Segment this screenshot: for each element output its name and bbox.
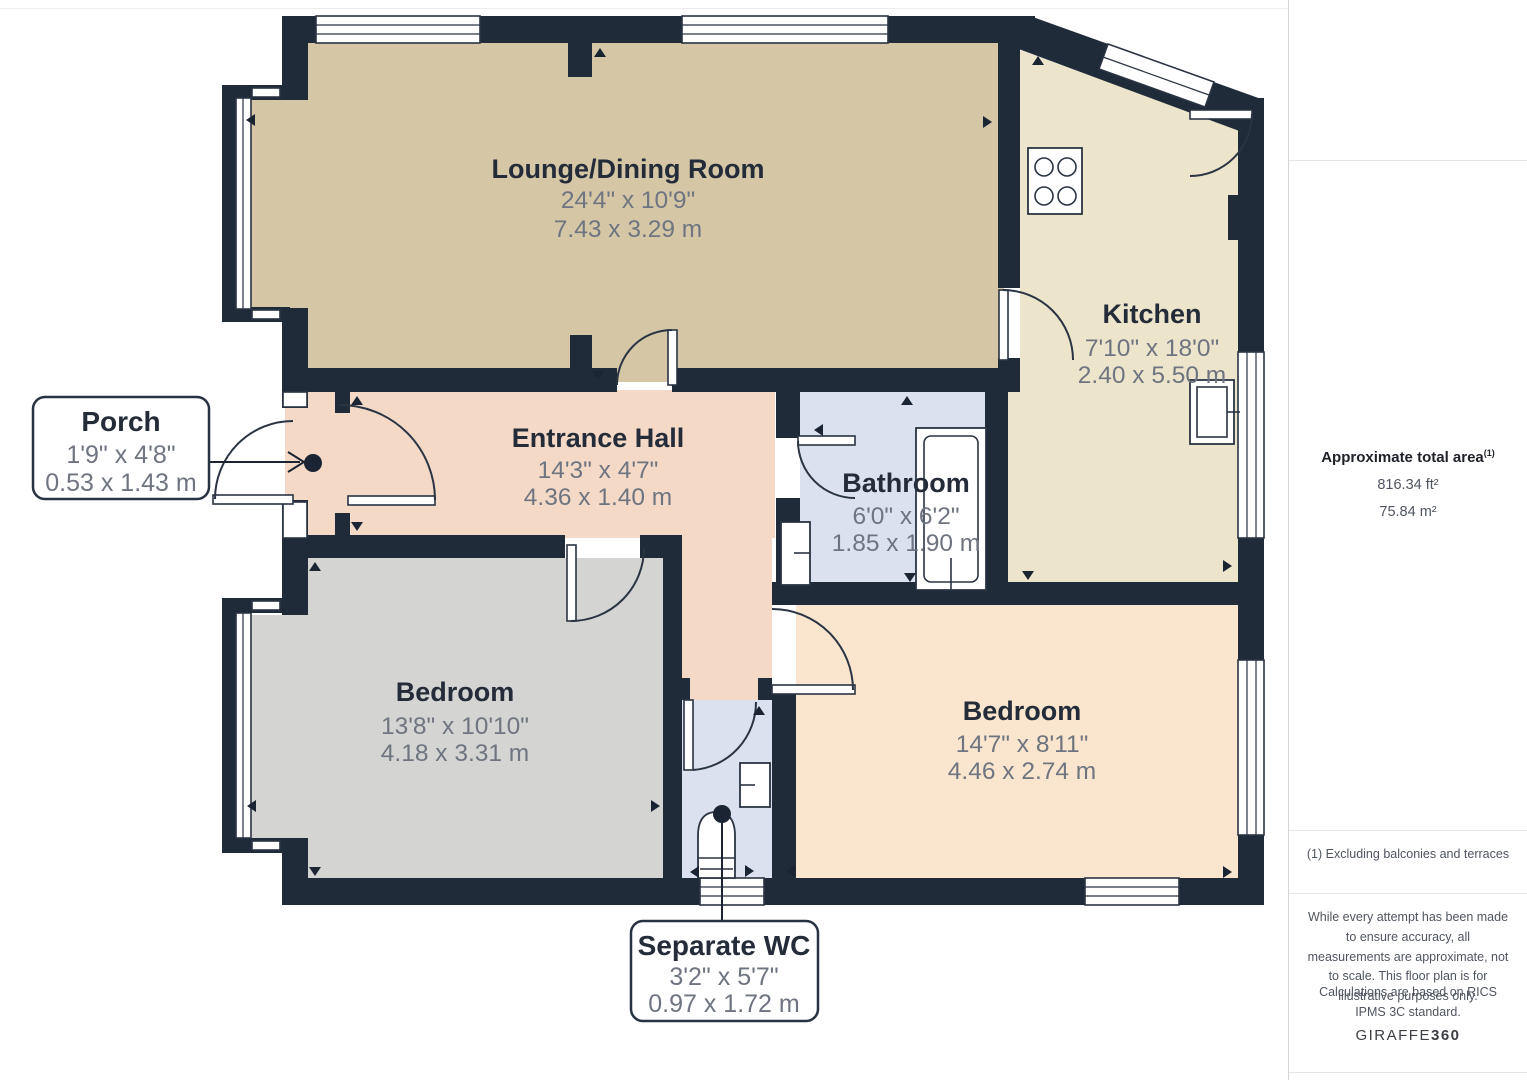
hall-name: Entrance Hall: [512, 423, 685, 453]
wc-metric: 0.97 x 1.72 m: [648, 990, 799, 1018]
floorplan-page: { "branding": { "name": "PAUL BIRTLES", …: [0, 0, 1527, 1080]
standard-note: Calculations are based on RICS IPMS 3C s…: [1303, 983, 1513, 1023]
porch-metric: 0.53 x 1.43 m: [45, 469, 196, 497]
total-area-title: Approximate total area(1): [1289, 448, 1527, 466]
kitchen-sink-icon: [1190, 380, 1240, 444]
lounge-top-window-1: [316, 16, 480, 43]
bedroom-right-metric: 4.46 x 2.74 m: [948, 758, 1096, 785]
total-area-block: Approximate total area(1) 816.34 ft² 75.…: [1289, 448, 1527, 520]
bedroom-left-name: Bedroom: [396, 677, 515, 707]
bedroom-right-bottom-window: [1085, 878, 1179, 905]
sidebar-divider-2: [1289, 830, 1527, 831]
lounge-metric: 7.43 x 3.29 m: [554, 216, 702, 243]
bathroom-name: Bathroom: [842, 468, 970, 498]
bedroom-left-imperial: 13'8" x 10'10": [381, 713, 529, 740]
sidebar-bottom-rule: [1289, 1072, 1527, 1073]
bedroom-left-metric: 4.18 x 3.31 m: [381, 740, 529, 767]
kitchen-imperial: 7'10" x 18'0": [1085, 335, 1219, 362]
bedroom-right-side-window: [1238, 660, 1264, 835]
bathroom-sink-icon: [781, 522, 810, 585]
porch-imperial: 1'9" x 4'8": [66, 441, 175, 469]
lounge-top-window-2: [682, 16, 888, 43]
total-area-ft2: 816.34 ft²: [1289, 477, 1527, 493]
total-area-m2: 75.84 m²: [1289, 504, 1527, 520]
giraffe-text: GIRAFFE: [1355, 1027, 1431, 1044]
giraffe360-mark: GIRAFFE360: [1289, 1027, 1527, 1044]
floorplan-svg: Lounge/Dining Room 24'4" x 10'9" 7.43 x …: [0, 0, 1288, 1080]
porch-callout: Porch 1'9" x 4'8" 0.53 x 1.43 m: [33, 397, 322, 499]
hall-metric: 4.36 x 1.40 m: [524, 484, 672, 511]
wc-imperial: 3'2" x 5'7": [669, 963, 778, 991]
total-area-title-text: Approximate total area: [1321, 449, 1484, 466]
toilet-icon: [698, 812, 735, 878]
lounge-name: Lounge/Dining Room: [492, 154, 765, 184]
label-bedroom-left: Bedroom 13'8" x 10'10" 4.18 x 3.31 m: [381, 677, 529, 767]
sidebar-divider-3: [1289, 893, 1527, 894]
sidebar-divider-1: [1289, 160, 1527, 161]
label-bathroom: Bathroom 6'0" x 6'2" 1.85 x 1.90 m: [832, 468, 980, 557]
label-bedroom-right: Bedroom 14'7" x 8'11" 4.46 x 2.74 m: [948, 696, 1096, 785]
giraffe-360-text: 360: [1431, 1027, 1461, 1044]
kitchen-name: Kitchen: [1102, 299, 1201, 329]
wc-bottom-window: [700, 878, 764, 905]
stove-icon: [1028, 148, 1082, 214]
lounge-imperial: 24'4" x 10'9": [561, 187, 695, 214]
bathroom-imperial: 6'0" x 6'2": [852, 503, 959, 530]
wc-name: Separate WC: [638, 930, 811, 961]
total-area-superscript: (1): [1484, 448, 1495, 458]
kitchen-metric: 2.40 x 5.50 m: [1078, 362, 1226, 389]
bedroom-right-name: Bedroom: [963, 696, 1082, 726]
area-footnote: (1) Excluding balconies and terraces: [1289, 847, 1527, 861]
wc-sink-icon: [740, 763, 770, 807]
kitchen-right-window: [1238, 352, 1264, 538]
hall-imperial: 14'3" x 4'7": [538, 457, 659, 484]
bedroom-right-imperial: 14'7" x 8'11": [956, 731, 1089, 758]
bathroom-metric: 1.85 x 1.90 m: [832, 530, 980, 557]
porch-name: Porch: [81, 406, 160, 437]
